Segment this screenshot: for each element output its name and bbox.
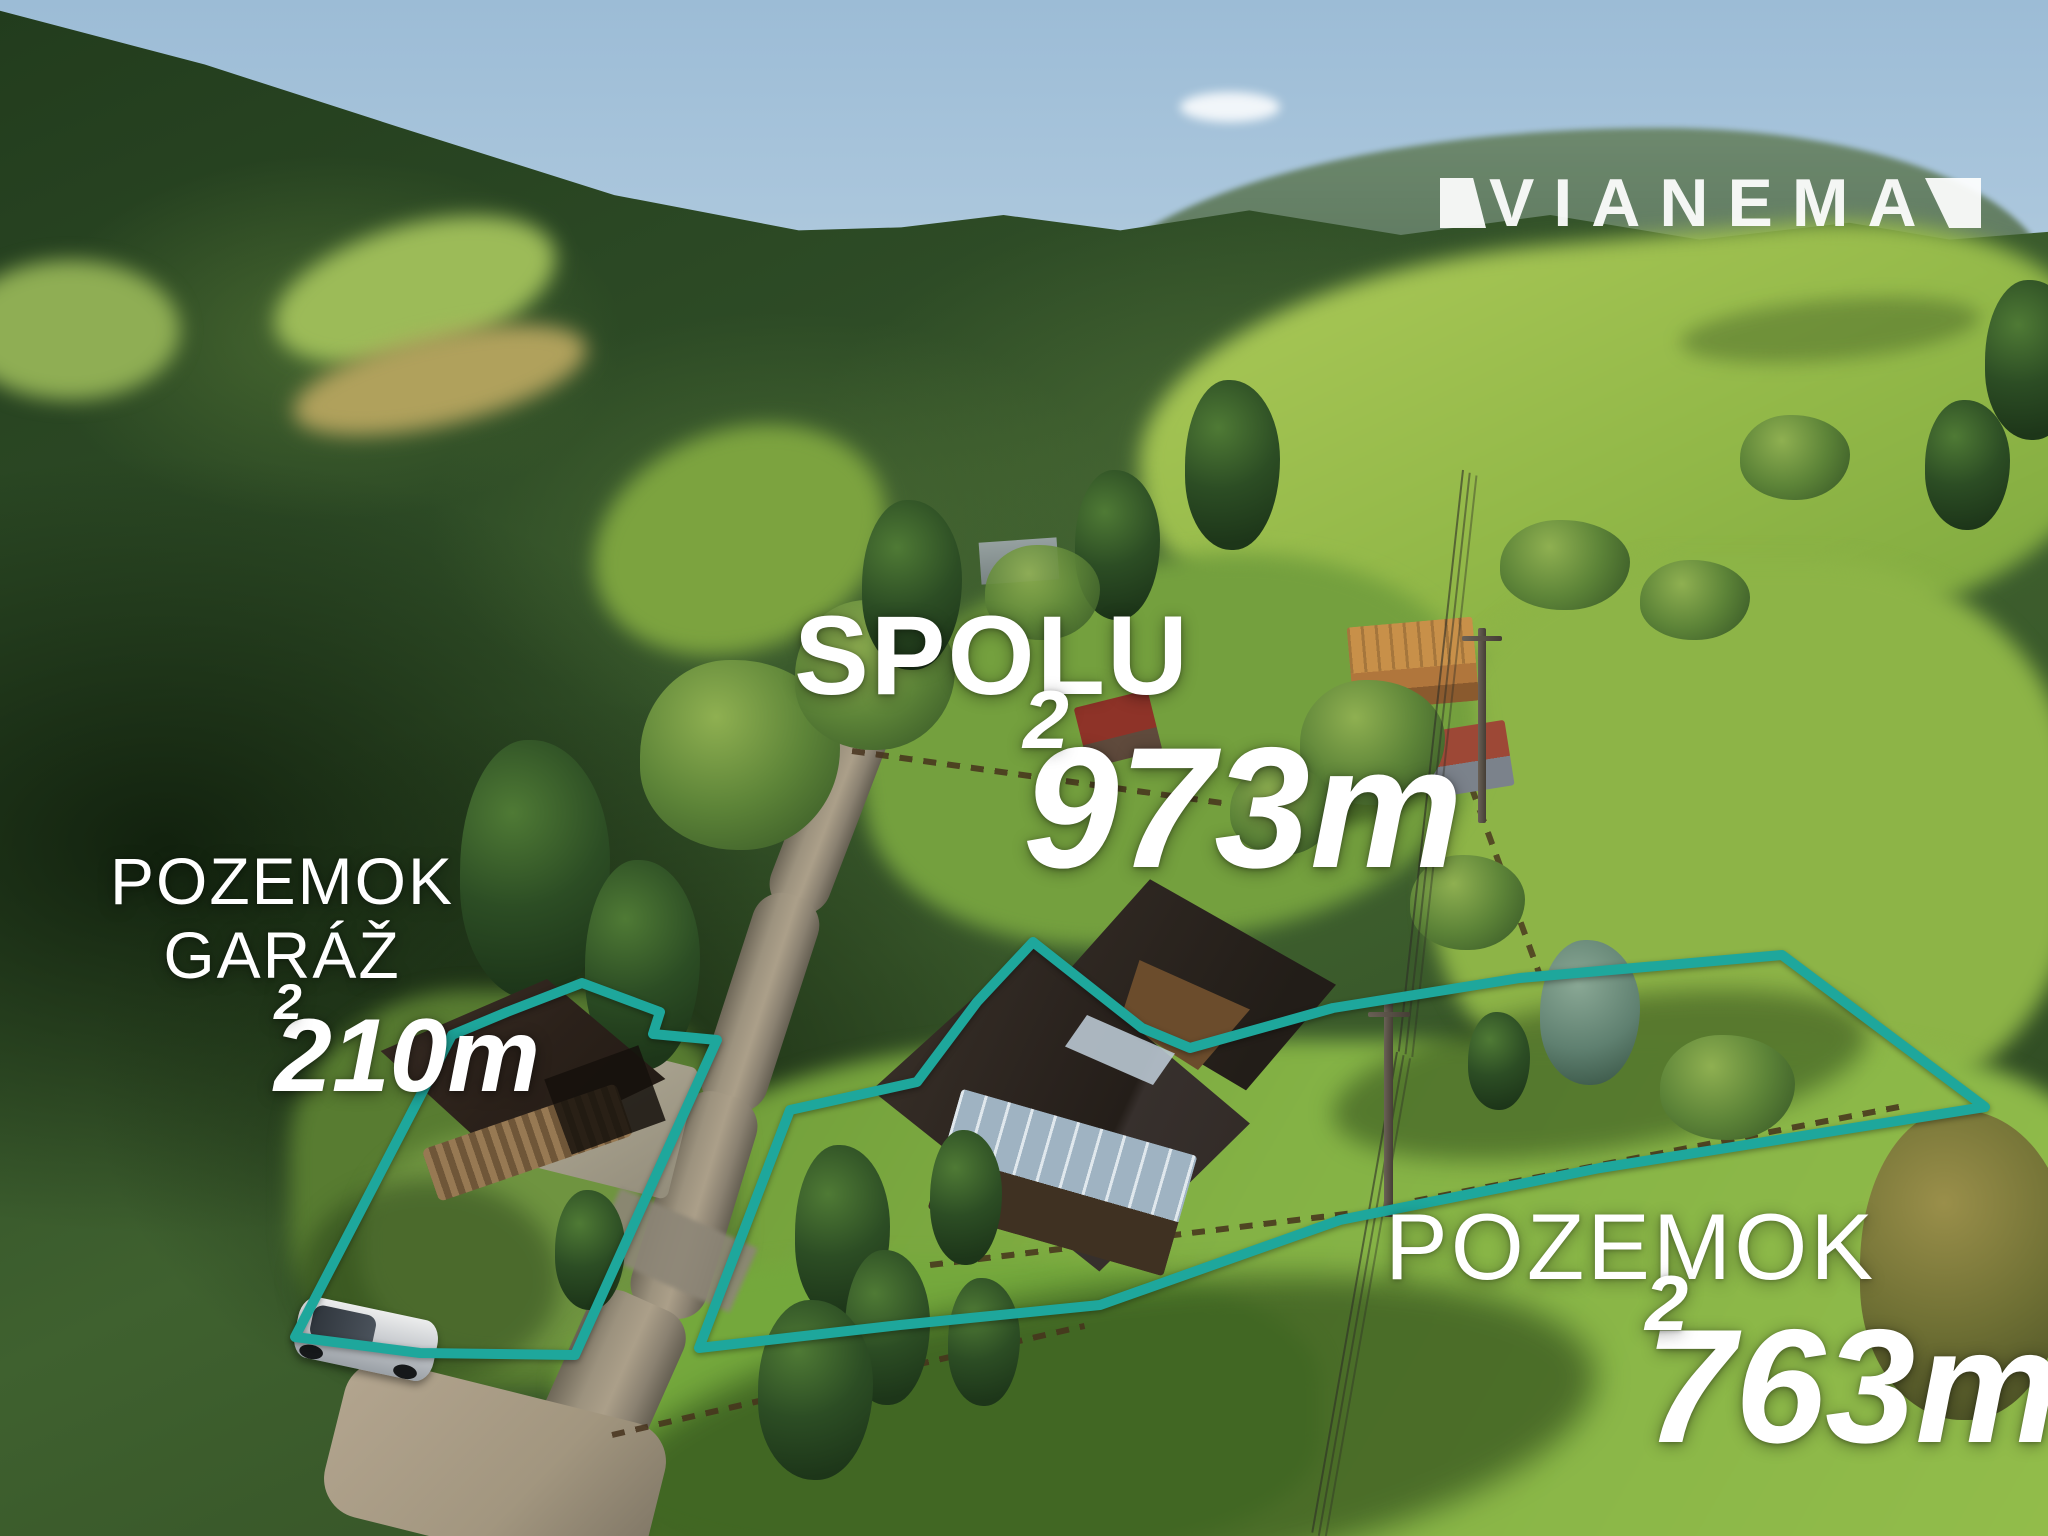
total-area-number: 973m [1023, 722, 1463, 894]
main-parcel-title: POZEMOK [1385, 1200, 1855, 1294]
total-area-title: SPOLU [732, 600, 1252, 712]
garage-parcel-title-line1: POZEMOK [62, 848, 502, 914]
garage-parcel-area-number: 210m [274, 1004, 540, 1108]
listing-photo-graphic: SPOLU 973m2 POZEMOK GARÁŽ 210m2 POZEMOK … [0, 0, 2048, 1536]
garage-parcel-area-superscript: 2 [274, 978, 302, 1028]
main-parcel-area-number: 763m [1645, 1306, 2048, 1468]
main-parcel-area-superscript: 2 [1645, 1266, 1688, 1344]
total-area-superscript: 2 [1023, 679, 1069, 762]
brand-logo-text: VIANEMA [1489, 178, 1949, 228]
